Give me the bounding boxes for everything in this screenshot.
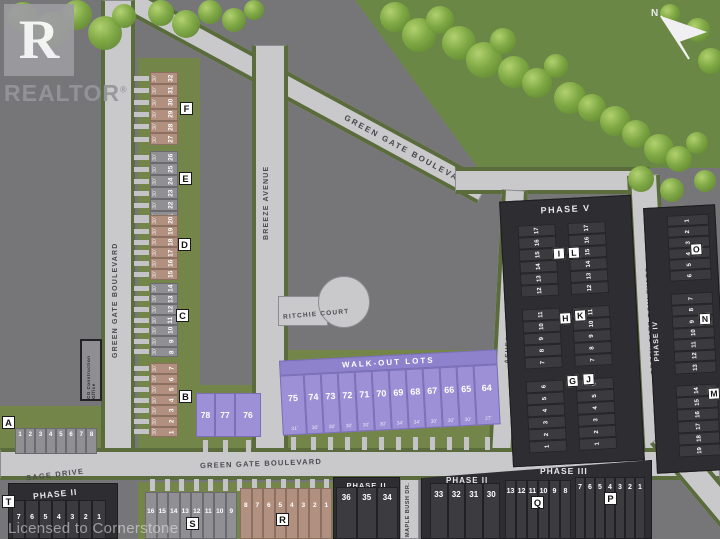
lot-number: 7 [77,432,85,438]
driveway-stub [134,167,149,172]
lot-number: 13 [168,295,175,302]
driveway-stub [134,229,149,234]
lot-width-label: 30' [153,376,158,383]
ritchie-cul-de-sac [318,276,370,328]
block-badge-A: A [2,416,15,429]
lot-number: 25 [168,165,175,172]
lot-number: 16 [534,239,540,246]
driveway-stub [134,398,149,403]
lot-number: 2 [626,484,634,491]
phase-label-4: PHASE IV [651,296,663,386]
lot-number: 67 [425,386,440,396]
lot-number: 70 [374,389,389,399]
lot-number: 14 [168,285,175,292]
lot-width-label: 34' [409,420,424,426]
driveway-stub [362,437,367,450]
block-badge-J: J [582,373,595,386]
street-label-breeze: BREEZE AVENUE [263,148,270,258]
lot-A-2: 2 [25,428,35,454]
lot-number: 4 [47,432,55,438]
lot-width-label: 30' [153,124,158,131]
lot-number: 1 [170,430,177,434]
lot-number: 7 [170,366,177,370]
lot-number: 64 [476,383,498,393]
lot-number: 16 [168,260,175,267]
driveway-stub [311,437,316,450]
lot-number: 13 [181,509,191,516]
street-label-maple-bush: MAPLE BUSH DR. [405,482,411,537]
driveway-stub [328,437,333,450]
lot-number: 18 [696,435,702,442]
lot-number: 76 [243,411,252,420]
realtor-logo: R REALTOR® [4,4,128,107]
tree [686,132,708,154]
lot-D-18: 30'18 [150,237,178,248]
street-label-green-gate-left: GREEN GATE BOULEVARD [112,235,119,365]
lot-number: 16 [584,237,590,244]
lot-S-12: 12 [191,492,203,539]
lot-B-3: 30'3 [150,405,178,416]
lot-width-label: 30' [153,99,158,106]
lot-number: 6 [586,484,594,491]
driveway-stub [134,112,149,117]
lot-width-label: 30' [153,260,158,267]
north-label: N [651,8,658,19]
driveway-stub [134,429,149,434]
tree [222,8,246,32]
lot-phase2-32: 32 [448,483,466,539]
lot-width-label: 30' [307,426,322,432]
driveway-stub [134,250,149,255]
driveway-stub [134,366,149,371]
lot-D-16: 30'16 [150,258,178,269]
lot-width-label: 30' [153,250,158,257]
driveway-stub [134,179,149,184]
driveway-stub [379,437,384,450]
lot-width-label: 30' [153,327,158,334]
lot-number: 5 [542,397,548,401]
lot-F-30: 30'30 [150,96,178,108]
lot-number: 4 [543,409,549,413]
lot-width-label: 30' [153,239,158,246]
lot-number: 11 [204,509,214,516]
lot-width-label: 30' [443,418,458,424]
lot-number: 16 [146,509,156,516]
lot-P-7: 7 [575,477,585,539]
block-badge-T: T [2,495,15,508]
license-watermark: Licensed to Cornerstone [8,520,178,537]
lot-K-7: 7 [574,353,613,367]
block-badge-K: K [574,309,587,322]
lot-A-8: 8 [86,428,96,454]
lot-F-29: 30'29 [150,109,178,121]
tree [198,0,222,24]
driveway-stub [134,240,149,245]
lot-number: 4 [170,398,177,402]
lot-F-27: 30'27 [150,133,178,145]
block-badge-G: G [566,375,579,388]
north-arrow-wing [661,16,707,42]
lot-number: 1 [685,218,691,222]
lot-number: 15 [158,509,168,516]
lot-number: 35 [358,494,377,502]
lot-R-3: 3 [298,488,310,539]
lot-number: 12 [517,488,526,495]
lot-number: 23 [168,189,175,196]
lot-D-15: 30'15 [150,269,178,280]
lot-number: 73 [323,392,338,402]
tree [148,0,174,26]
lot-number: 12 [192,509,202,516]
lot-number: 13 [536,275,542,282]
lot-number: 17 [583,225,589,232]
lot-width-label: 30' [153,87,158,94]
driveway-stub [134,408,149,413]
driveway-stub [134,137,149,142]
lot-number: 8 [241,503,251,510]
lot-width-label: 34' [392,421,407,427]
driveway-stub [345,437,350,450]
lot-F-32: 30'32 [150,72,178,84]
lot-width-label: 30' [153,190,158,197]
lot-number: 9 [539,337,545,341]
lot-number: 5 [592,394,598,398]
lot-number: 11 [691,341,697,348]
lot-Q-11: 11 [527,480,538,539]
lot-walkout-75: 7531' [280,374,307,435]
block-badge-I: I [553,247,566,260]
driveway-stub [134,339,149,344]
lot-B-1: 30'1 [150,427,178,438]
lot-width-label: 30' [375,422,390,428]
lot-C-8: 30'8 [150,347,178,358]
driveway-stub [134,261,149,266]
lot-P-6: 6 [585,477,595,539]
lot-number: 28 [168,123,175,130]
lot-A-1: 1 [15,428,25,454]
lot-F-31: 30'31 [150,84,178,96]
lot-number: 19 [168,228,175,235]
driveway-stub [134,286,149,291]
lot-number: 17 [168,249,175,256]
driveway-stub [396,437,401,450]
lot-77: 77 [215,393,235,437]
lot-width-label: 30' [153,178,158,185]
lot-O-6: 6 [669,269,712,282]
sidewalk-stub [208,479,213,491]
phase5-block: PHASE V 17161514131217161514131211109871… [499,195,645,468]
driveway-stub [464,437,469,450]
lot-number: 10 [588,320,594,327]
tree [172,10,200,38]
lot-number: 24 [168,177,175,184]
lot-width-label: 30' [153,228,158,235]
block-badge-Q: Q [531,496,544,509]
tree [660,178,684,202]
lot-number: 13 [692,364,698,371]
lot-number: 11 [588,309,594,316]
lot-E-26: 30'26 [150,151,178,163]
tree [628,166,654,192]
lot-number: 7 [253,503,263,510]
lot-number: 10 [539,323,545,330]
lot-number: 31 [168,87,175,94]
lot-D-17: 30'17 [150,247,178,258]
registered-mark: ® [120,84,128,94]
lot-walkout-64: 6427' [474,364,501,425]
lot-number: 7 [590,358,596,362]
driveway-stub [134,124,149,129]
lot-number: 13 [586,273,592,280]
lot-width-label: 30' [153,271,158,278]
lot-number: 8 [561,488,570,495]
lot-number: 3 [616,484,624,491]
lot-number: 2 [544,433,550,437]
lot-78: 78 [196,393,215,437]
lot-C-12: 30'12 [150,304,178,315]
lot-width-label: 30' [153,202,158,209]
lot-S-11: 11 [203,492,215,539]
lot-width-label: 30' [153,166,158,173]
lot-width-label: 30' [153,386,158,393]
sidewalk-stub [179,479,184,491]
lot-width-label: 30' [153,111,158,118]
block-badge-B: B [179,390,192,403]
lot-width-label: 30' [153,296,158,303]
lot-number: 6 [542,385,548,389]
lot-number: 16 [695,411,701,418]
lot-H-7: 7 [524,356,563,370]
lot-number: 5 [57,432,65,438]
lot-number: 14 [169,509,179,516]
lot-number: 10 [215,509,225,516]
driveway-stub [134,100,149,105]
lot-N-13: 13 [674,360,717,374]
driveway-stub [134,387,149,392]
lot-width-label: 30' [153,365,158,372]
lot-number: 3 [544,421,550,425]
lot-number: 5 [170,388,177,392]
lot-number: 8 [590,346,596,350]
block-badge-R: R [276,513,289,526]
lot-number: 77 [220,411,229,420]
tree [244,0,264,20]
lot-phase2-36: 36 [336,487,357,539]
lot-number: 5 [687,262,693,266]
driveway-stub [134,296,149,301]
lot-number: 11 [538,311,544,318]
driveway-stub [134,272,149,277]
lot-R-7: 7 [252,488,264,539]
block-badge-L: L [568,246,581,259]
lot-width-label: 30' [153,217,158,224]
sidewalk-stub [165,479,170,491]
lot-B-2: 30'2 [150,416,178,427]
lot-number: 74 [306,393,321,403]
lot-E-25: 30'25 [150,163,178,175]
lot-width-label: 30' [358,423,373,429]
lot-A-4: 4 [46,428,56,454]
lot-R-8: 8 [240,488,252,539]
lot-number: 9 [170,339,177,343]
lot-number: 7 [576,484,584,491]
realtor-logo-word: REALTOR® [4,80,128,107]
lot-width-label: 30' [153,154,158,161]
block-badge-P: P [604,492,617,505]
lot-R-6: 6 [263,488,275,539]
lot-number: 10 [691,329,697,336]
lot-number: 4 [606,484,614,491]
lot-width-label: 30' [153,418,158,425]
lot-width-label: 30' [324,425,339,431]
driveway-stub [291,437,296,450]
driveway-stub [134,328,149,333]
lot-phase2-35: 35 [357,487,378,539]
block-badge-N: N [699,313,712,326]
lot-number: 14 [585,261,591,268]
lot-P-3: 3 [615,477,625,539]
lot-S-10: 10 [214,492,226,539]
lot-number: 1 [545,445,551,449]
lot-P-5: 5 [595,477,605,539]
driveway-stub [447,437,452,450]
lot-number: 5 [276,503,286,510]
walkout-lots-strip: WALK-OUT LOTS 7531'7430'7330'7230'7130'7… [279,349,501,442]
lot-number: 6 [264,503,274,510]
driveway-stub [134,318,149,323]
lot-number: 11 [528,488,537,495]
lot-width-label: 30' [153,397,158,404]
tree [544,54,568,78]
lot-number: 5 [596,484,604,491]
lot-B-6: 30'6 [150,374,178,385]
lot-number: 72 [340,391,355,401]
phase4-block: PHASE IV 12345678910111213141516171819ON… [643,204,720,473]
lot-C-11: 30'11 [150,315,178,326]
sidewalk-stub [150,479,155,491]
lot-number: 22 [168,201,175,208]
lot-number: 18 [168,238,175,245]
lot-number: 6 [688,273,694,277]
driveway-stub [134,76,149,81]
sidewalk-stub [223,479,228,491]
driveway-stub [223,440,228,452]
lot-J-1: 1 [579,437,618,451]
lot-width-label: 30' [153,136,158,143]
lot-number: 19 [697,447,703,454]
lot-number: 10 [168,327,175,334]
lot-number: 68 [408,387,423,397]
lot-number: 2 [685,229,691,233]
lot-number: 65 [459,385,474,395]
lot-number: 4 [593,406,599,410]
lot-E-22: 30'22 [150,199,178,211]
lot-R-2: 2 [309,488,321,539]
lot-F-28: 30'28 [150,121,178,133]
lot-width-label: 30' [153,317,158,324]
lot-number: 6 [67,432,75,438]
lot-C-14: 30'14 [150,283,178,294]
driveway-stub [134,88,149,93]
lot-number: 1 [16,432,24,438]
lot-number: 12 [168,306,175,313]
road-maple-bush: MAPLE BUSH DR. [400,478,419,539]
lot-number: 17 [534,227,540,234]
lot-number: 15 [585,249,591,256]
tree [694,170,716,192]
driveway-stub [246,440,251,452]
driveway-stub [134,376,149,381]
lot-width-label: 31' [284,426,306,432]
lot-number: 2 [310,503,320,510]
lot-number: 15 [535,251,541,258]
lot-Q-9: 9 [549,480,560,539]
lot-number: 30 [484,491,500,499]
lot-width-label: 30' [153,349,158,356]
lot-phase2-30: 30 [483,483,501,539]
lot-width-label: 30' [426,419,441,425]
lot-number: 8 [87,432,95,438]
lot-number: 3 [36,432,44,438]
driveway-stub [134,203,149,208]
lot-M-19: 19 [679,443,720,457]
lot-number: 15 [694,399,700,406]
lot-number: 2 [594,430,600,434]
lot-width-label: 30' [341,424,356,430]
lot-number: 3 [594,418,600,422]
lot-number: 3 [170,409,177,413]
lot-Q-8: 8 [560,480,571,539]
realtor-logo-icon: R [4,4,74,76]
driveway-stub [134,349,149,354]
tree [490,28,516,54]
phase-label-5: PHASE V [500,201,630,218]
driveway-stub [134,419,149,424]
construction-office-label: CO Construction Office [86,341,96,399]
lot-number: 11 [168,317,175,324]
lot-number: 9 [550,488,559,495]
lot-number: 8 [170,350,177,354]
lot-number: 1 [595,442,601,446]
lot-width-label: 30' [153,285,158,292]
lot-D-19: 30'19 [150,226,178,237]
lot-phase2-31: 31 [465,483,483,539]
driveway-stub [134,218,149,223]
lot-Q-12: 12 [516,480,527,539]
lot-width-label: 30' [460,418,475,424]
lot-E-24: 30'24 [150,175,178,187]
lot-number: 7 [541,361,547,365]
block-badge-S: S [186,517,199,530]
lot-number: 9 [589,334,595,338]
lot-number: 12 [537,287,543,294]
lot-L-12: 12 [570,281,609,295]
lot-number: 12 [587,285,593,292]
lot-S-13: 13 [180,492,192,539]
lot-C-9: 30'9 [150,336,178,347]
lot-A-6: 6 [66,428,76,454]
lot-number: 32 [168,74,175,81]
lot-number: 9 [690,320,696,324]
lot-Q-10: 10 [538,480,549,539]
lot-A-3: 3 [35,428,45,454]
lot-A-5: 5 [56,428,66,454]
lot-width-label: 30' [153,429,158,436]
lot-number: 2 [26,432,34,438]
lot-number: 14 [535,263,541,270]
lot-P-1: 1 [635,477,645,539]
lot-I-12: 12 [521,284,560,298]
